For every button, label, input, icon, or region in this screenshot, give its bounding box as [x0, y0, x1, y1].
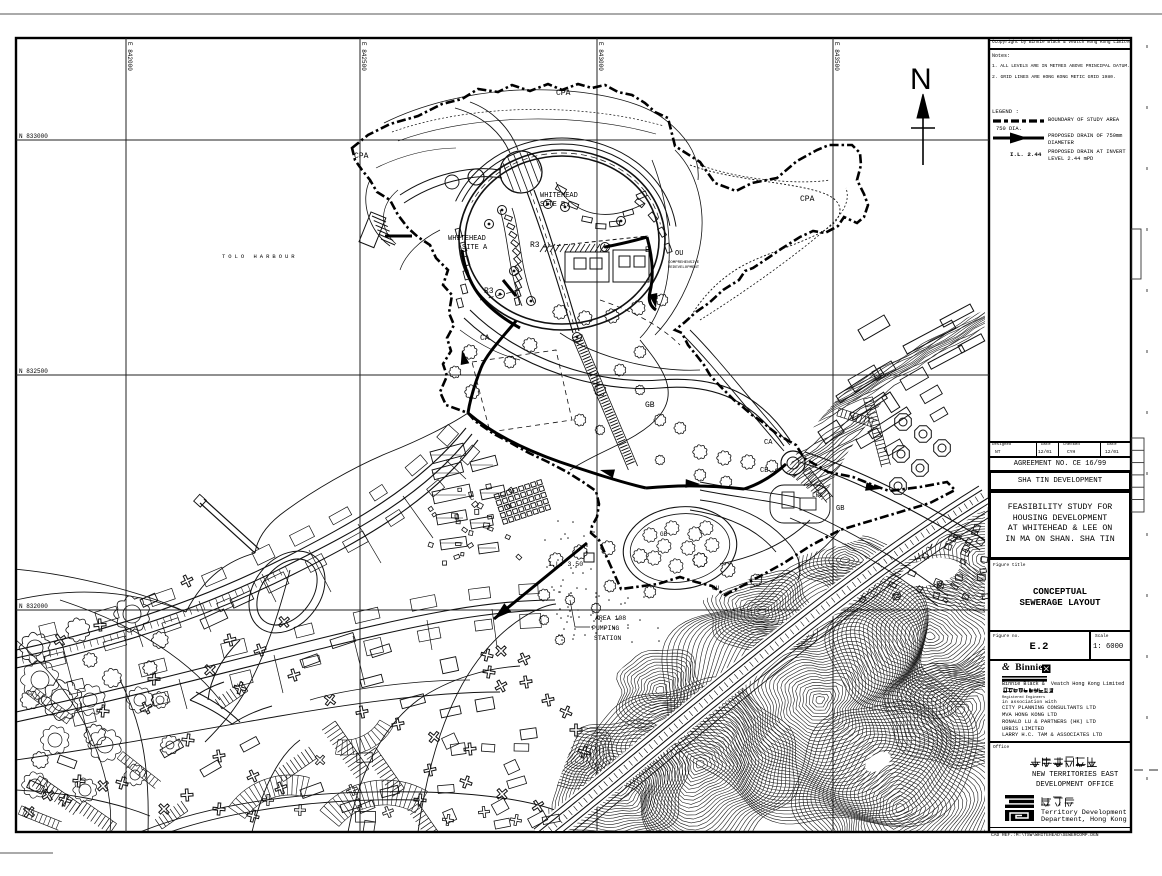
svg-text:OU: OU: [675, 250, 683, 258]
svg-text:N 832000: N 832000: [19, 603, 48, 610]
svg-text:N 832500: N 832500: [19, 368, 48, 375]
svg-text:E 842500: E 842500: [360, 42, 367, 71]
svg-text:CPA: CPA: [800, 195, 815, 204]
svg-text:C: C: [470, 495, 474, 503]
svg-text:E: E: [645, 246, 650, 255]
svg-text:AREA 108: AREA 108: [595, 615, 626, 622]
svg-text:CB: CB: [760, 467, 768, 475]
svg-text:REDEVELOPMENT: REDEVELOPMENT: [668, 266, 700, 270]
svg-text:GB: GB: [645, 401, 655, 410]
svg-text:SITE B: SITE B: [540, 201, 565, 209]
svg-text:GB: GB: [836, 505, 844, 513]
svg-text:GB: GB: [660, 531, 668, 538]
svg-text:STATION: STATION: [594, 635, 621, 642]
svg-text:SITE A: SITE A: [462, 244, 488, 252]
svg-text:TOLO HARBOUR: TOLO HARBOUR: [222, 253, 298, 260]
svg-text:E 843500: E 843500: [833, 42, 840, 71]
svg-text:WHITEHEAD: WHITEHEAD: [448, 235, 486, 243]
svg-text:WHITEHEAD: WHITEHEAD: [540, 192, 578, 200]
svg-text:N: N: [910, 63, 932, 96]
svg-text:I.L. 3.50: I.L. 3.50: [548, 561, 583, 568]
svg-text:CA: CA: [480, 334, 490, 343]
svg-text:PUMPING: PUMPING: [592, 625, 619, 632]
svg-text:R3: R3: [530, 241, 540, 250]
svg-text:CPA: CPA: [354, 152, 369, 161]
svg-text:LRC: LRC: [812, 492, 823, 499]
svg-text:R3: R3: [484, 287, 494, 296]
svg-text:CA: CA: [764, 439, 773, 447]
svg-text:N 833000: N 833000: [19, 133, 48, 140]
svg-text:CPA: CPA: [556, 89, 571, 98]
svg-text:COMPREHENSIVE: COMPREHENSIVE: [668, 261, 700, 265]
svg-text:E 843000: E 843000: [597, 42, 604, 71]
svg-text:OU: OU: [712, 585, 720, 592]
svg-text:E 842000: E 842000: [126, 42, 133, 71]
